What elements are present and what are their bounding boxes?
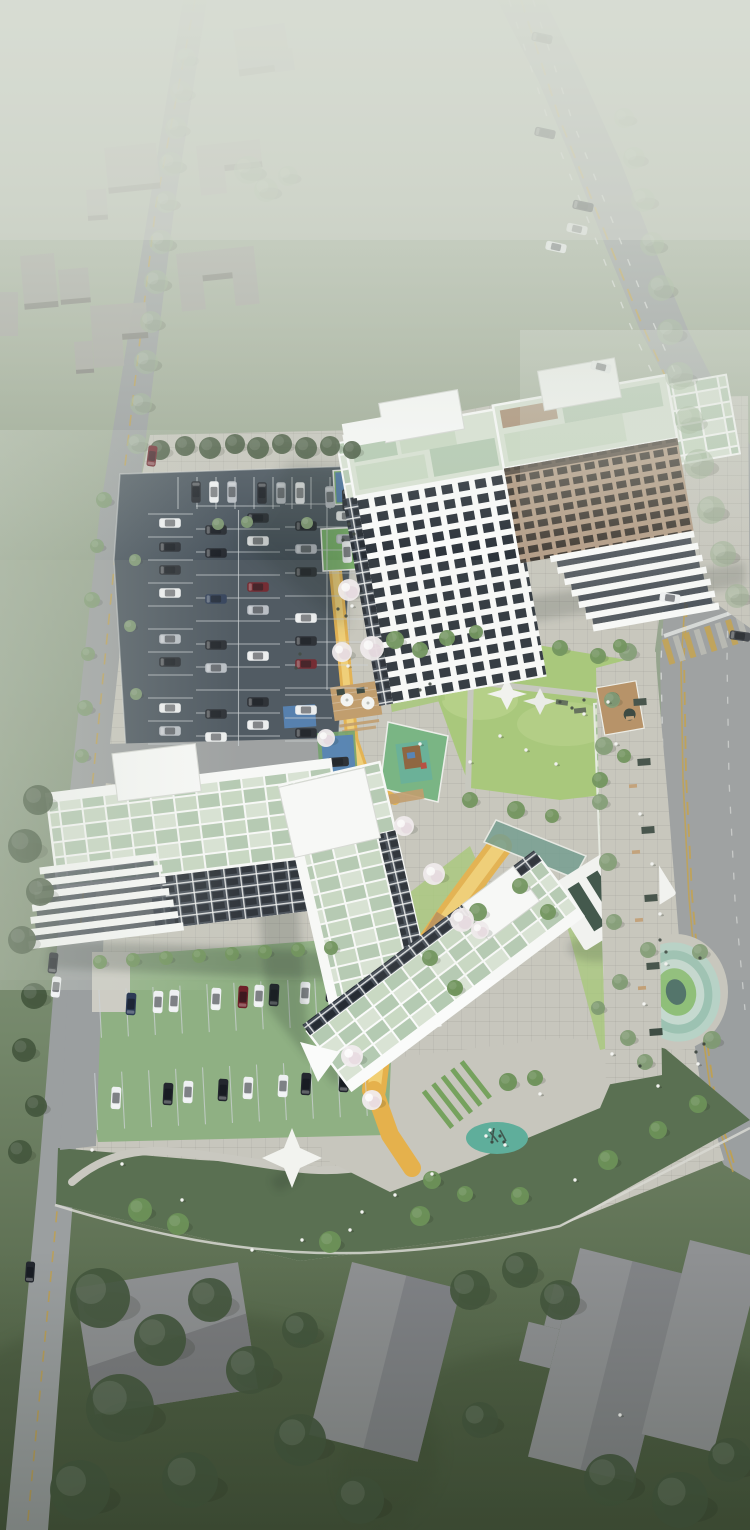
equipment-dot xyxy=(694,1050,697,1053)
car xyxy=(211,988,222,1011)
street-planter xyxy=(649,1028,662,1036)
car xyxy=(183,1081,194,1104)
street-bench xyxy=(638,986,646,990)
car xyxy=(111,1087,122,1110)
teal-play-circle xyxy=(466,1122,528,1154)
car xyxy=(243,1077,254,1100)
equipment-dot xyxy=(638,1064,641,1067)
aerial-site-rendering xyxy=(0,0,750,1530)
equipment-dot xyxy=(502,1140,505,1143)
car xyxy=(278,1075,289,1098)
equipment-dot xyxy=(490,1140,493,1143)
car xyxy=(153,991,164,1014)
equipment-dot xyxy=(702,1042,705,1045)
car xyxy=(126,993,137,1016)
car xyxy=(254,985,265,1008)
car xyxy=(169,990,180,1013)
equipment-dot xyxy=(498,1134,501,1137)
aerial-render-stage xyxy=(0,0,750,1530)
fog-top-dense xyxy=(0,0,750,240)
car xyxy=(301,1073,312,1096)
car xyxy=(218,1079,229,1102)
car xyxy=(163,1083,174,1106)
bottom-vignette xyxy=(0,1250,750,1530)
